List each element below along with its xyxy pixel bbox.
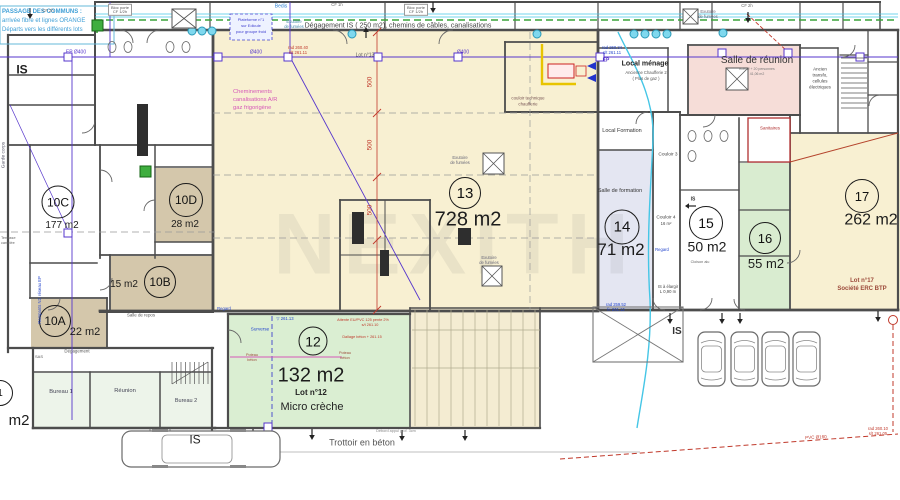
door-arc-icon bbox=[869, 95, 880, 106]
electrical-box-icon bbox=[92, 20, 103, 31]
flow-arrow bbox=[685, 203, 689, 209]
bedis-label: Bedis bbox=[275, 4, 288, 9]
toilet-icon bbox=[688, 151, 696, 162]
manhole-icon bbox=[663, 30, 671, 38]
room-16-area: 55 m2 bbox=[748, 257, 784, 271]
door-arc-icon bbox=[653, 298, 665, 310]
car-wheel bbox=[152, 429, 168, 432]
poteau-beton-label: béton bbox=[247, 358, 257, 362]
toilet-icon bbox=[720, 131, 728, 142]
exutoire-label: de fumées bbox=[698, 15, 718, 19]
plateforme-l1: Plateforme n°1 bbox=[238, 18, 265, 22]
room-13-area: 728 m2 bbox=[435, 210, 502, 231]
salle-reunion-sub: 41,06 m2 bbox=[750, 73, 765, 77]
ep-diagonal bbox=[290, 57, 420, 300]
ep-junction bbox=[214, 53, 222, 61]
flow-arrow bbox=[430, 8, 436, 13]
garde-corps-label: Garde corps bbox=[1, 142, 6, 168]
room-16-number: 16 bbox=[749, 222, 781, 254]
chaufferie-label: ( Plus de gaz ) bbox=[633, 77, 660, 81]
level-marker: ▽ 261.13 bbox=[276, 317, 293, 321]
reunion-label: Réunion bbox=[114, 388, 136, 394]
d400-label: Ø400 bbox=[250, 50, 262, 55]
toilet-icon bbox=[124, 42, 132, 53]
exutoire-label: de fumées bbox=[284, 25, 304, 29]
room-17-lot: Lot n°17 bbox=[850, 278, 874, 284]
service-shaft bbox=[137, 104, 148, 156]
room-10c-area: 177 m2 bbox=[45, 221, 78, 232]
bloc-porte-label: Bloc porte CF 1/2h bbox=[108, 4, 132, 16]
regard-label: Regard bbox=[217, 307, 231, 311]
sanitaires-label: Sanitaires bbox=[760, 127, 780, 132]
door-arc-icon bbox=[636, 112, 648, 124]
trottoir-label: Trottoir en béton bbox=[329, 438, 395, 447]
room-10d-area: 28 m2 bbox=[171, 220, 199, 231]
room-partial-area: m2 bbox=[9, 413, 30, 429]
plateforme-l2: sur Edicule bbox=[241, 24, 261, 28]
room-17-area: 262 m2 bbox=[844, 213, 897, 230]
car-wheel bbox=[230, 429, 246, 432]
debord-label: Débord appui prof. 3cm bbox=[376, 429, 416, 433]
cheminements-l2: canalisations A/R bbox=[233, 97, 277, 103]
manhole-icon bbox=[208, 27, 216, 35]
couloir3-label: Couloir 3 bbox=[658, 152, 677, 157]
pvc-node bbox=[889, 316, 898, 325]
floor-plan-canvas: NEXITH bbox=[0, 0, 900, 500]
poteau-beton-label: Poteau bbox=[339, 351, 351, 355]
door-arc-icon bbox=[82, 120, 95, 133]
rad-note: s/t 261.05 bbox=[869, 432, 887, 436]
cf-1h-label: CF 1h bbox=[331, 3, 342, 7]
flow-arrow bbox=[587, 74, 596, 82]
pvc-line bbox=[560, 434, 898, 459]
bloc-porte-l2: CF 1/2h bbox=[407, 10, 425, 14]
car-wheel bbox=[230, 465, 246, 468]
bureau1-label: Bureau 1 bbox=[49, 389, 73, 395]
is-label-bay: IS bbox=[672, 327, 681, 338]
boiler-unit bbox=[548, 64, 574, 78]
transfo-label: électriques bbox=[809, 86, 831, 91]
flow-arrow bbox=[587, 62, 596, 70]
poteau-beton-label: Poteau bbox=[246, 353, 258, 357]
flow-arrow bbox=[399, 436, 405, 441]
bloc-porte-label: Bloc porte CF 1/2h bbox=[404, 4, 428, 16]
is-elargir: L 0,90 m bbox=[660, 290, 676, 294]
rad-note: fe 261.12 bbox=[607, 308, 624, 312]
lot13-tag: Lot n°13 bbox=[356, 53, 375, 58]
room-15-number: 15 bbox=[689, 206, 723, 240]
manhole-icon bbox=[198, 27, 206, 35]
manhole-icon bbox=[630, 30, 638, 38]
rad-note: s/t 261.11 bbox=[289, 51, 307, 55]
couloir-technique-label: chaufferie bbox=[518, 103, 537, 108]
room-15-area: 50 m2 bbox=[688, 240, 727, 255]
manhole-icon bbox=[348, 30, 356, 38]
service-shaft bbox=[352, 212, 364, 244]
door-arc-icon bbox=[100, 170, 112, 182]
couloir4-area: 16 m² bbox=[661, 222, 672, 226]
d400-label: Ø400 bbox=[457, 50, 469, 55]
transfo-label: cellules bbox=[812, 80, 827, 85]
flow-arrow bbox=[875, 317, 881, 322]
passage-note-line3: Départs vers les différents lots bbox=[2, 27, 83, 34]
terrasse-label: Terrasse bbox=[1, 236, 16, 240]
dim-500: 500 bbox=[368, 77, 375, 88]
cloison-alu-label: Cloison alu bbox=[691, 260, 710, 264]
salle-repos-label: Salle de repos bbox=[127, 314, 155, 319]
room-10d-number: 10D bbox=[169, 183, 203, 217]
degagement-label: Dégagement bbox=[64, 350, 89, 355]
corridor-label: Dégagement IS ( 250 m2), chemins de câbl… bbox=[305, 22, 492, 29]
service-shaft bbox=[458, 228, 471, 245]
cheminements-l1: Cheminements bbox=[233, 89, 272, 95]
room-14-area: 71 m2 bbox=[597, 241, 644, 259]
red-boundary bbox=[790, 133, 898, 162]
passage-note-line2: arrivée fibre et lignes ORANGE bbox=[2, 18, 85, 25]
local-formation-label: Local Formation bbox=[602, 129, 641, 135]
local-menage-label: Local ménage bbox=[622, 60, 669, 67]
rampants-label: Rampants N2, réseau EP bbox=[38, 276, 42, 323]
door-arc-icon bbox=[144, 200, 155, 211]
ep-junction bbox=[856, 53, 864, 61]
couloir4-label: Couloir 4 bbox=[656, 215, 675, 220]
sanitaires-outline bbox=[748, 118, 790, 162]
room-10b-area: 15 m2 bbox=[110, 280, 138, 291]
boiler-unit bbox=[576, 66, 586, 76]
is-label-room15: IS bbox=[691, 197, 696, 202]
attente-note: Attente EU/PVC 125 pente 2% bbox=[337, 318, 389, 322]
dim-500: 500 bbox=[368, 205, 375, 216]
dim-500: 500 bbox=[368, 140, 375, 151]
room-12-name: Micro crèche bbox=[281, 402, 344, 414]
door-arc-icon bbox=[703, 115, 715, 127]
room-17-company: Société ERC BTP bbox=[837, 286, 886, 292]
room-17-number: 17 bbox=[845, 179, 879, 213]
poteau-beton-label: béton bbox=[340, 356, 350, 360]
flow-arrow bbox=[309, 435, 315, 440]
door-arc-icon bbox=[700, 298, 712, 310]
door-arc-icon bbox=[228, 330, 241, 343]
couloir-technique-label: couloir technique bbox=[511, 97, 544, 102]
room-10c-number: 10C bbox=[42, 186, 75, 219]
manhole-icon bbox=[652, 30, 660, 38]
door-arc-icon bbox=[120, 30, 133, 43]
flow-arrow bbox=[667, 319, 673, 324]
flow-arrow bbox=[719, 319, 725, 324]
room-10b-number: 10B bbox=[144, 266, 176, 298]
door-arc-icon bbox=[333, 30, 347, 44]
manhole-icon bbox=[719, 29, 727, 37]
sas-label: SAS bbox=[35, 355, 43, 359]
toilet-icon bbox=[108, 42, 116, 53]
rad-note: s/t 261.11 bbox=[603, 51, 621, 55]
chaufferie-label: Ancienne Chaufferie 2 bbox=[625, 71, 666, 75]
cheminements-l3: gaz frigorigène bbox=[233, 105, 271, 111]
ep-junction bbox=[264, 423, 272, 431]
car-wheel bbox=[152, 465, 168, 468]
flow-arrow bbox=[462, 436, 468, 441]
toilet-icon bbox=[166, 42, 174, 53]
door-arc-icon bbox=[439, 30, 453, 44]
salle-reunion-label: Salle de réunion bbox=[721, 56, 793, 67]
room-13-number: 13 bbox=[449, 177, 481, 209]
electrical-box-icon bbox=[140, 166, 151, 177]
attente-note: s/t 261.10 bbox=[362, 323, 379, 327]
bureau2-label: Bureau 2 bbox=[175, 399, 197, 405]
dallage-note: Dallage béton + 261.15 bbox=[342, 335, 381, 339]
manhole-icon bbox=[641, 30, 649, 38]
is-label-left: IS bbox=[16, 64, 27, 77]
door-arc-icon bbox=[147, 30, 160, 43]
ep-d400-label: EP Ø400 bbox=[66, 50, 86, 55]
cf-2h-label: CF 2h bbox=[42, 9, 53, 13]
exutoire-label: de fumées bbox=[450, 161, 470, 165]
room-12-area: 132 m2 bbox=[278, 366, 345, 387]
boiler-equipment bbox=[92, 20, 790, 452]
transfo-label: Ancien bbox=[813, 68, 827, 73]
surverse-label: Surverse bbox=[251, 328, 269, 333]
car-icon bbox=[122, 431, 280, 467]
room-10a-number: 10A bbox=[39, 305, 71, 337]
toilet-icon bbox=[182, 42, 190, 53]
flow-arrow bbox=[737, 319, 743, 324]
bloc-porte-l2: CF 1/2h bbox=[111, 10, 129, 14]
manhole-icon bbox=[533, 30, 541, 38]
is-label-bottom: IS bbox=[189, 434, 200, 447]
exutoire-label: de fumées bbox=[479, 261, 499, 265]
salle-formation-label: Salle de formation bbox=[598, 189, 642, 195]
room-12-lot: Lot n°12 bbox=[295, 389, 327, 397]
transfo-label: transfo, bbox=[812, 74, 827, 79]
plateforme-l3: pour groupe froid bbox=[236, 30, 266, 34]
room-12-number: 12 bbox=[299, 327, 328, 356]
regard-label: Regard bbox=[655, 248, 669, 252]
ep-label: EP bbox=[603, 58, 610, 63]
terrasse-label: carrelée bbox=[1, 241, 15, 245]
ep-junction bbox=[374, 53, 382, 61]
toilet-icon bbox=[704, 131, 712, 142]
room-10a-area: 22 m2 bbox=[70, 327, 101, 339]
toilet-icon bbox=[688, 131, 696, 142]
service-shaft bbox=[380, 250, 389, 276]
cf-2h-label: CF 2h bbox=[741, 4, 752, 8]
